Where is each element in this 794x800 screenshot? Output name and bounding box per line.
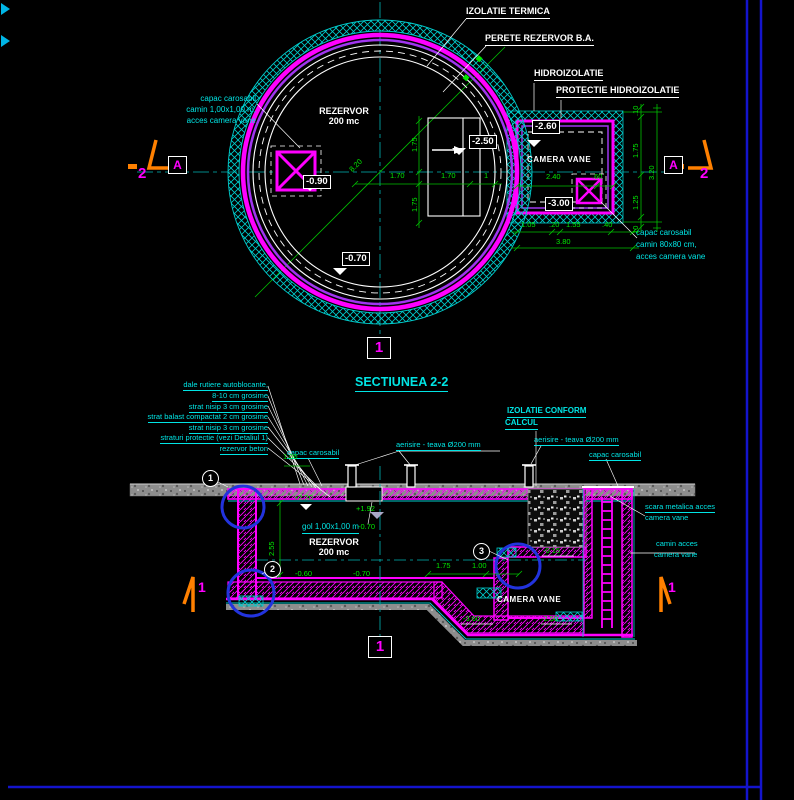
note-capac-right-3: acces camera vane	[636, 253, 705, 262]
dim: 3.80	[556, 238, 571, 246]
dim: 1.75	[632, 143, 640, 158]
label-scara-1: scara metalica acces	[645, 503, 715, 513]
dim: 1	[484, 172, 488, 180]
elev: -0.15	[543, 547, 560, 555]
callout-3: 3	[473, 543, 490, 560]
label-perete-rezervor: PERETE REZERVOR B.A.	[485, 34, 594, 46]
elev: -2.50	[541, 615, 558, 623]
label-izolatie-2: CALCUL	[505, 419, 538, 430]
elevation-badge: -2.60	[532, 120, 560, 134]
axis-mark-A-right: A	[664, 156, 683, 174]
dim: 1.05	[521, 221, 536, 229]
frame-tick-icon	[1, 35, 10, 47]
callout-2: 2	[264, 561, 281, 578]
note-capac-left-1: capac carosabil	[200, 95, 256, 104]
section-mark-2-right: 2	[700, 166, 708, 183]
label-izolatie-1: IZOLATIE CONFORM	[507, 407, 586, 418]
label-gol: gol 1,00x1,00 m	[302, 523, 359, 534]
elev: -0.70	[353, 570, 370, 578]
dim: 3.20	[648, 165, 656, 180]
elev: +2.20	[294, 494, 313, 502]
sloped-slab	[434, 582, 584, 633]
label-izolatie-termica: IZOLATIE TERMICA	[466, 7, 550, 19]
dim: 1.00	[472, 562, 487, 570]
section-camera-vane-label: CAMERA VANE	[497, 596, 561, 605]
note-capac-right-1: capac carosabil	[636, 229, 692, 238]
label-aerisire-left: aerisire - teava Ø200 mm	[396, 441, 481, 451]
label-aerisire-right: aerisire - teava Ø200 mm	[534, 436, 619, 446]
layer-note: strat balast compactat 2 cm grosime	[148, 413, 268, 423]
section-mark-1-left: 1	[198, 580, 206, 595]
dim: 2.55	[268, 541, 276, 556]
ladder	[602, 497, 612, 628]
layer-note: dale rutiere autoblocante,	[183, 381, 268, 391]
dim: 2.40	[546, 173, 561, 181]
note-capac-right-2: camin 80x80 cm,	[636, 241, 696, 250]
dim: 1.70	[390, 172, 405, 180]
dim: .20	[549, 221, 559, 229]
cad-drawing-canvas: IZOLATIE TERMICA PERETE REZERVOR B.A. HI…	[0, 0, 794, 800]
dim: 1.70	[441, 172, 456, 180]
center-opening	[428, 118, 480, 216]
dim: 1.55	[566, 221, 581, 229]
gol-opening	[346, 487, 382, 501]
dim: 1.25	[632, 195, 640, 210]
axis-mark-1-plan: 1	[367, 337, 391, 359]
section-title: SECTIUNEA 2-2	[355, 376, 448, 392]
elevation-badge: -3.00	[545, 197, 573, 211]
dim: .40	[602, 221, 612, 229]
dim: 1.75	[411, 137, 419, 152]
elevation-badge: -0.90	[303, 175, 331, 189]
label-camin-2: camera vane	[654, 551, 697, 559]
frame-tick-icon	[1, 3, 10, 15]
label-camin-1: camin acces	[656, 540, 698, 548]
layer-note: straturi protectie (vezi Detaliul 1)	[160, 434, 268, 444]
dim: .10	[632, 226, 640, 236]
note-capac-left-2: camin 1,00x1,00 m,	[186, 106, 256, 115]
plan-camera-vane-label: CAMERA VANE	[527, 156, 591, 165]
label-capac-right: capac carosabil	[589, 451, 641, 461]
section-rezervor-label: REZERVOR 200 mc	[300, 538, 368, 558]
dim: 1.75	[411, 197, 419, 212]
axis-mark-A-left: A	[168, 156, 187, 174]
drawing-frame	[1, 0, 761, 800]
layer-note: rezervor beton	[220, 445, 268, 455]
elevation-badge: -2.50	[469, 135, 497, 149]
label-protectie-hidro: PROTECTIE HIDROIZOLATIE	[556, 86, 679, 98]
plan-rezervor-label: REZERVOR 200 mc	[310, 107, 378, 127]
elev: -0.60	[295, 570, 312, 578]
axis-mark-1-section: 1	[368, 636, 392, 658]
label-scara-2: camera vane	[645, 514, 688, 522]
shaft-right-wall	[622, 489, 632, 637]
gravel-backfill	[528, 489, 586, 547]
sump-hatch	[239, 596, 263, 606]
label-hidroizolatie: HIDROIZOLATIE	[534, 69, 603, 81]
section-mark-1-right: 1	[668, 580, 676, 595]
dim: .60	[592, 173, 602, 181]
elev: -3.60	[463, 615, 480, 623]
note-capac-left-3: acces camera vane	[187, 117, 256, 126]
plan-view	[128, 2, 711, 336]
cad-linework	[0, 0, 794, 800]
dim: .10	[632, 106, 640, 116]
dim: 1.00	[283, 453, 298, 461]
section-mark-2-left: 2	[138, 166, 146, 183]
dim: 1.75	[436, 562, 451, 570]
elev: -0.70	[358, 523, 375, 531]
shaft-left-wall	[584, 489, 592, 618]
layer-note: 8-10 cm grosime	[212, 392, 268, 402]
callout-1: 1	[202, 470, 219, 487]
elevation-badge: -0.70	[342, 252, 370, 266]
elev: +1.92	[356, 505, 375, 513]
